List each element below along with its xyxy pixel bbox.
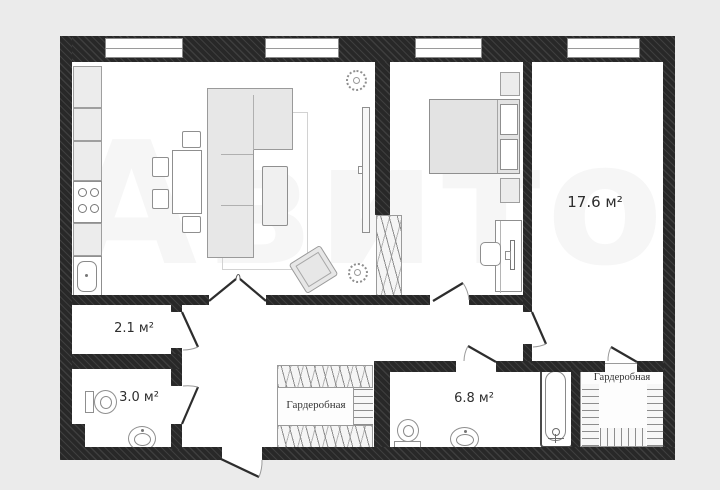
door-arc-bedroom xyxy=(463,283,469,300)
door-leaf-living-right xyxy=(240,279,266,301)
door-arc-3-0 xyxy=(183,386,198,387)
door-arc-2-1 xyxy=(183,347,198,350)
door-arc-6-8 xyxy=(464,346,468,361)
door-leaf-17-6 xyxy=(532,312,546,344)
door-leaf-3-0 xyxy=(182,387,198,424)
floorplan-canvas: Авито xyxy=(0,0,720,490)
room-label-3-0: 3.0 м² xyxy=(104,390,174,405)
door-symbols xyxy=(0,0,720,490)
door-leaf-living-left xyxy=(209,279,236,301)
room-label-17-6: 17.6 м² xyxy=(555,193,635,211)
door-arc-wardrobe xyxy=(608,347,611,361)
door-leaf-wardrobe xyxy=(611,347,637,362)
door-living-center xyxy=(236,275,240,280)
room-label-2-1: 2.1 м² xyxy=(99,321,169,336)
door-leaf-6-8 xyxy=(468,346,496,362)
door-arc-17-6 xyxy=(533,344,546,347)
door-leaf-bedroom xyxy=(433,283,463,301)
room-label-6-8: 6.8 м² xyxy=(439,391,509,406)
door-leaf-2-1 xyxy=(182,312,198,347)
